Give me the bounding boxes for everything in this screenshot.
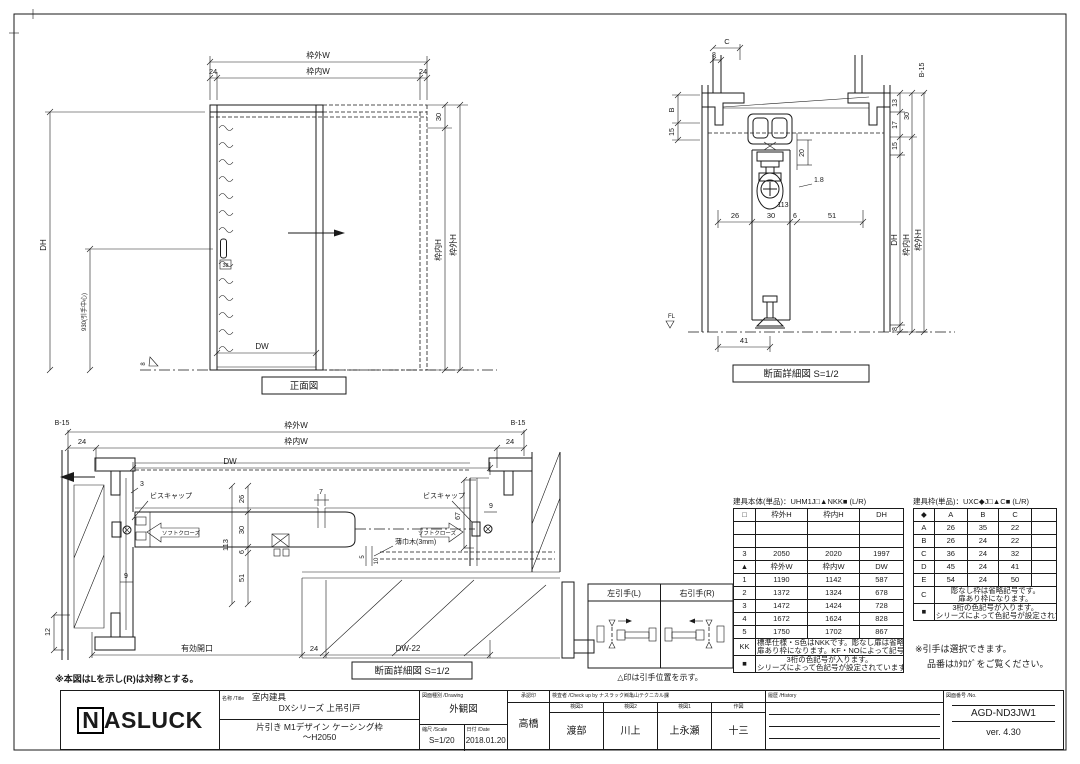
checker-col: 作図 十三 — [711, 703, 765, 749]
dim-handle-center: 930(引手中心) — [80, 293, 88, 331]
dim-20: 20 — [799, 149, 806, 157]
logo-wordmark: ASLUCK — [104, 709, 203, 732]
product-series: DXシリーズ 上吊引戸 — [220, 703, 419, 713]
floor-guide — [755, 296, 785, 328]
dim-door-width: DW — [255, 342, 269, 351]
dim-outer-w: 枠外W — [284, 420, 308, 430]
checker-name: 十三 — [712, 722, 765, 737]
remark-line-2: 品番はｶﾀﾛｸﾞをご覧ください。 — [915, 657, 1049, 672]
dim-1-8: 1.8 — [814, 177, 824, 184]
checkers-cell: 検査者 /Check up by ナスラック㈱亀山テクニカル課 検図3 渡部 検… — [549, 691, 765, 749]
plan-section-title: 断面詳細図 S=1/2 — [374, 665, 449, 677]
dim-8-bottom: 8 — [892, 327, 899, 331]
dim-24-left: 24 — [78, 437, 86, 446]
table-row — [734, 522, 904, 535]
dim-113: 113 — [221, 539, 230, 551]
note-line: 扉あり枠になります。 — [958, 594, 1032, 603]
lower-wall — [302, 572, 594, 658]
table-row: 314721424728 — [734, 600, 904, 613]
dim-30: 30 — [767, 211, 775, 220]
dim-b15-left: B-15 — [55, 420, 70, 427]
dim-30-top: 30 — [434, 113, 443, 121]
dim-51: 51 — [828, 211, 836, 220]
note-line: シリーズによって色記号が設定されています。 — [936, 611, 1057, 620]
dim-24-right: 24 — [506, 437, 514, 446]
table-row: B262422 — [914, 535, 1057, 548]
table-row: A263522 — [914, 522, 1057, 535]
soft-close-arrow-left: ソフトクローズ — [147, 523, 201, 542]
dim-3: 3 — [140, 481, 144, 488]
drawing-version: ver. 4.30 — [944, 727, 1063, 737]
dim-b15: B-15 — [919, 63, 926, 78]
product-height-range: ～H2050 — [220, 732, 419, 742]
dim-outer-width: 枠外W — [306, 50, 330, 60]
history-row-line — [769, 727, 940, 739]
remark-line-1: ※引手は選択できます。 — [915, 642, 1049, 657]
door-grain — [219, 126, 233, 352]
checker-role: 検図1 — [658, 703, 711, 713]
dim-b: B — [667, 107, 676, 112]
drawing-number: AGD-ND3JW1 — [952, 705, 1055, 722]
dim-6: 6 — [239, 550, 246, 554]
dim-outer-h: 枠外H — [913, 229, 923, 251]
drawing-number-cell: 図面番号 /No. AGD-ND3JW1 ver. 4.30 — [943, 691, 1063, 749]
dim-10: 10 — [374, 557, 380, 564]
fl-label: FL — [668, 314, 676, 320]
note-line: シリーズによって色記号が設定されています。 — [757, 663, 904, 672]
door-frame-table: 建具枠(単品)：UXC◆J□▲C■ (L/R) ◆ABC A263522 B26… — [913, 496, 1063, 621]
dim-9-left: 9 — [124, 573, 128, 580]
dim-inner-height: 枠内H — [433, 239, 443, 261]
table-row: E542450 — [914, 574, 1057, 587]
mirror-note: ※本図はLを示し(R)は対称とする。 — [55, 673, 198, 684]
screw-cap-label-left: ビスキャップ — [150, 491, 192, 500]
checker-col: 検図1 上永瀬 — [657, 703, 711, 749]
right-handle-diagram — [665, 619, 724, 649]
front-view: 38 枠外W 24 枠内W 24 30 枠内H 枠外H DH 930(引手中心) — [39, 50, 497, 394]
table-row: □枠外H枠内HDH — [734, 509, 904, 522]
product-spec: 片引き M1デザイン ケーシング枠 — [220, 722, 419, 732]
date-value: 2018.01.20 — [465, 736, 508, 745]
table-note-row: ■ 3桁の色記号が入ります。シリーズによって色記号が設定されています。 — [914, 603, 1057, 620]
door-frame-table-grid: ◆ABC A263522 B262422 C362432 D452441 E54… — [913, 508, 1057, 621]
history-cell: 履歴 /History — [765, 691, 943, 749]
table-note-row: KK 標準仕様・S色はNKKです。彫なし扉は省略記号です。扉あり枠になります。K… — [734, 639, 904, 656]
dim-12: 12 — [45, 628, 52, 636]
checker-role: 作図 — [712, 703, 765, 713]
table-row: 517501702867 — [734, 626, 904, 639]
vertical-section-title: 断面詳細図 S=1/2 — [763, 368, 838, 380]
floor-level-marker: FL — [666, 314, 676, 328]
handle-position-legend: 左引手(L) 右引手(R) △印は引手位置を示す。 — [588, 584, 733, 682]
dim-inner-w: 枠内W — [284, 436, 308, 446]
dim-dw-22: DW-22 — [396, 644, 421, 653]
table-note-row: ■ 3桁の色記号が入ります。シリーズによって色記号が設定されています。 — [734, 655, 904, 672]
handle-dim: 38 — [222, 263, 228, 269]
table-note-row: C 彫なし枠は省略記号です。扉あり枠になります。 — [914, 587, 1057, 604]
checker-col: 検図3 渡部 — [550, 703, 603, 749]
drawing-sheet: 38 枠外W 24 枠内W 24 30 枠内H 枠外H DH 930(引手中心) — [0, 0, 1080, 764]
dim-5: 5 — [360, 555, 366, 559]
dim-door-height: DH — [39, 239, 48, 251]
note-line: 扉あり枠になります。KF・NOによって記号は異なります。 — [757, 646, 904, 655]
checkers-label: 検査者 /Check up by ナスラック㈱亀山テクニカル課 — [550, 691, 765, 703]
dim-24-bottom: 24 — [310, 644, 318, 653]
table-row: 111901142587 — [734, 574, 904, 587]
floor-offset-marker: 8 — [141, 357, 158, 366]
dim-26: 26 — [731, 211, 739, 220]
dim-7: 7 — [319, 489, 323, 496]
dim-67: 67 — [455, 512, 462, 520]
table-row: ▲枠外W枠内WDW — [734, 561, 904, 574]
plan-section-view: B-15 B-15 枠外W 24 枠内W 24 DW — [45, 420, 594, 684]
dim-9-right: 9 — [489, 503, 493, 510]
approver-name: 高橋 — [508, 715, 549, 730]
dim-17: 17 — [892, 121, 899, 129]
drawing-number-label: 図面番号 /No. — [944, 691, 1063, 699]
scale-label: 縮尺 /Scale — [420, 725, 464, 733]
name-label: 名称 /Title — [220, 694, 246, 702]
screw-cap-label-right: ビスキャップ — [423, 491, 465, 500]
skirting-label: 薄巾木(3mm) — [395, 537, 436, 546]
title-name-cell: 名称 /Title室内建具 DXシリーズ 上吊引戸 片引き M1デザイン ケーシ… — [219, 691, 419, 749]
table-row — [734, 535, 904, 548]
dim-15-right: 15 — [892, 142, 899, 150]
checker-name: 渡部 — [550, 722, 603, 737]
soft-close-label-right: ソフトクローズ — [418, 529, 457, 537]
dim-13: 13 — [892, 99, 899, 107]
dim-41: 41 — [740, 336, 748, 345]
right-jamb — [470, 452, 560, 572]
dim-outer-height: 枠外H — [448, 234, 458, 256]
checker-role: 検図2 — [604, 703, 657, 713]
drawing-type-label: 図面種別 /Drawing — [420, 691, 507, 699]
checker-role: 検図3 — [550, 703, 603, 713]
dim-26: 26 — [237, 495, 246, 503]
dim-effective-opening: 有効開口 — [181, 643, 213, 653]
dim-8: 8 — [141, 362, 147, 366]
dim-c: C — [724, 37, 730, 46]
drawing-type-cell: 図面種別 /Drawing 外観図 縮尺 /Scale S=1/20 日付 /D… — [419, 691, 507, 749]
guide-detail — [272, 534, 289, 556]
date-label: 日付 /Date — [465, 725, 508, 733]
dim-6: 6 — [793, 213, 797, 220]
door-body-table-title: 建具本体(単品)：UHM1J□▲NKK■ (L/R) — [733, 496, 905, 507]
table-row: 416721624828 — [734, 613, 904, 626]
dim-b15-right: B-15 — [511, 420, 526, 427]
dim-ticks — [47, 59, 463, 373]
dim-inner-h: 枠内H — [901, 234, 911, 256]
approval-label: 承認印 — [508, 691, 549, 703]
vertical-section-view: C 8 B 15 20 1.8 113 26 30 6 51 13 — [666, 37, 955, 382]
history-row-line — [769, 703, 940, 715]
dim-30: 30 — [237, 526, 246, 534]
history-label: 履歴 /History — [766, 691, 943, 703]
history-row-line — [769, 715, 940, 727]
door-handle: 38 — [220, 239, 231, 269]
hanger-rail — [748, 114, 792, 209]
table-row: 3205020201997 — [734, 548, 904, 561]
approval-cell: 承認印 高橋 — [507, 691, 549, 749]
scale-value: S=1/20 — [420, 736, 464, 745]
product-category: 室内建具 — [252, 691, 286, 703]
handle-remarks: ※引手は選択できます。 品番はｶﾀﾛｸﾞをご覧ください。 — [915, 642, 1049, 673]
nasluck-logo: NASLUCK — [61, 691, 219, 749]
dim-dw: DW — [223, 457, 237, 466]
checker-name: 川上 — [604, 722, 657, 737]
title-block: NASLUCK 名称 /Title室内建具 DXシリーズ 上吊引戸 片引き M1… — [60, 690, 1064, 750]
dim-24-left: 24 — [209, 67, 217, 76]
table-row: D452441 — [914, 561, 1057, 574]
soft-close-label-left: ソフトクローズ — [162, 529, 201, 537]
left-handle-diagram — [597, 619, 656, 649]
left-handle-header: 左引手(L) — [607, 588, 641, 598]
drawing-type-value: 外観図 — [420, 701, 507, 715]
handle-legend-caption: △印は引手位置を示す。 — [617, 672, 702, 682]
dim-51: 51 — [237, 574, 246, 582]
front-view-title: 正面図 — [290, 381, 319, 392]
checker-name: 上永瀬 — [658, 722, 711, 737]
table-row: ◆ABC — [914, 509, 1057, 522]
door-body-table-grid: □枠外H枠内HDH 3205020201997 ▲枠外W枠内WDW 111901… — [733, 508, 904, 673]
right-handle-header: 右引手(R) — [679, 588, 714, 598]
checker-col: 検図2 川上 — [603, 703, 657, 749]
dim-30-right: 30 — [904, 112, 911, 120]
table-row: 213721324678 — [734, 587, 904, 600]
dim-15-left: 15 — [669, 128, 676, 136]
door-frame-table-title: 建具枠(単品)：UXC◆J□▲C■ (L/R) — [913, 496, 1063, 507]
table-row: C362432 — [914, 548, 1057, 561]
door-body-table: 建具本体(単品)：UHM1J□▲NKK■ (L/R) □枠外H枠内HDH 320… — [733, 496, 905, 673]
left-jamb — [60, 450, 135, 660]
dim-inner-width: 枠内W — [306, 66, 330, 76]
dim-24-right: 24 — [419, 67, 427, 76]
logo-n-mark: N — [77, 707, 104, 734]
dim-113: 113 — [777, 202, 788, 209]
dim-dh: DH — [890, 234, 899, 246]
